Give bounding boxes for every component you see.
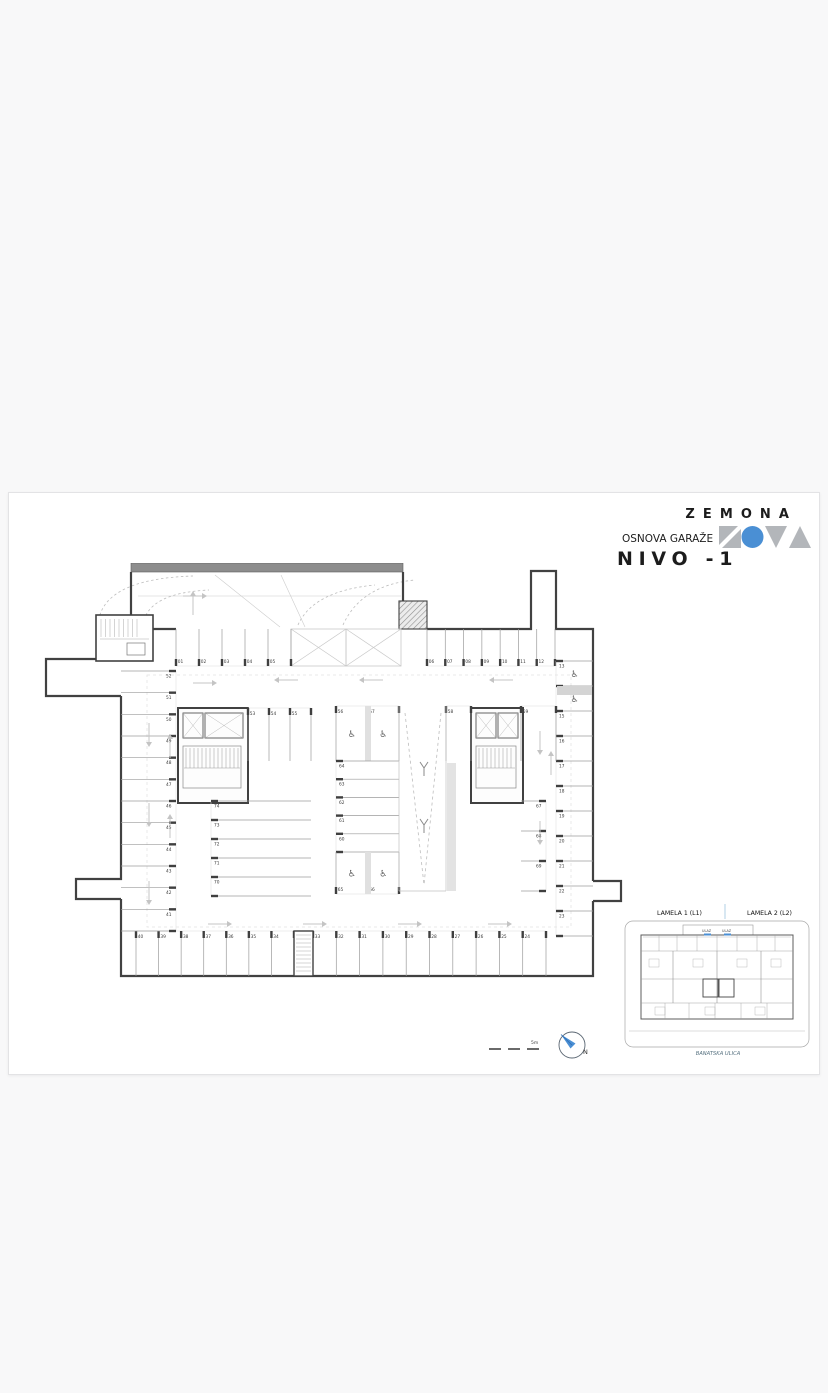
svg-text:71: 71 xyxy=(214,861,220,867)
svg-text:40: 40 xyxy=(138,934,144,940)
svg-text:33: 33 xyxy=(315,934,321,940)
svg-text:53: 53 xyxy=(250,711,256,717)
svg-text:37: 37 xyxy=(206,934,212,940)
svg-text:56: 56 xyxy=(338,709,344,715)
svg-text:67: 67 xyxy=(536,804,542,810)
svg-text:♿: ♿ xyxy=(570,670,578,680)
page-title: NIVO -1 xyxy=(617,548,738,570)
svg-text:61: 61 xyxy=(339,818,345,824)
svg-text:60: 60 xyxy=(339,836,345,842)
street-label: BANATSKA ULICA xyxy=(696,1051,741,1057)
svg-text:74: 74 xyxy=(214,804,220,810)
svg-text:19: 19 xyxy=(559,814,565,820)
lamela1-label: LAMELA 1 (L1) xyxy=(657,910,702,917)
svg-text:43: 43 xyxy=(166,869,172,875)
plan-drawing: 0102030405060708091011124039383736353433… xyxy=(46,563,621,976)
svg-text:46: 46 xyxy=(166,804,172,810)
svg-text:25: 25 xyxy=(501,934,507,940)
svg-text:23: 23 xyxy=(559,914,565,920)
svg-text:36: 36 xyxy=(228,934,234,940)
entrance1-marker xyxy=(704,934,711,936)
svg-text:15: 15 xyxy=(559,714,565,720)
lamela2-label: LAMELA 2 (L2) xyxy=(747,910,792,917)
svg-text:31: 31 xyxy=(361,934,367,940)
svg-text:42: 42 xyxy=(166,890,172,896)
svg-text:44: 44 xyxy=(166,847,172,853)
svg-text:10: 10 xyxy=(502,659,508,665)
svg-text:04: 04 xyxy=(247,659,253,665)
svg-text:49: 49 xyxy=(166,739,172,745)
svg-text:73: 73 xyxy=(214,823,220,829)
svg-text:72: 72 xyxy=(214,842,220,848)
svg-text:22: 22 xyxy=(559,889,565,895)
site-plan-inset: LAMELA 1 (L1) LAMELA 2 (L2) ULAZ ULAZ BA… xyxy=(619,903,819,1065)
svg-text:09: 09 xyxy=(484,659,490,665)
plan-footer-symbols: 5m N xyxy=(479,1023,609,1069)
svg-text:18: 18 xyxy=(559,789,565,795)
svg-text:69: 69 xyxy=(536,864,542,870)
svg-text:68: 68 xyxy=(536,834,542,840)
svg-text:62: 62 xyxy=(339,800,345,806)
svg-text:64: 64 xyxy=(339,764,345,770)
svg-text:35: 35 xyxy=(251,934,257,940)
entrance1-label: ULAZ xyxy=(702,929,712,933)
svg-text:59: 59 xyxy=(523,709,529,715)
nova-logo-icon xyxy=(719,526,811,548)
svg-text:12: 12 xyxy=(539,659,545,665)
inset-drawing xyxy=(625,921,809,1047)
svg-text:65: 65 xyxy=(338,887,344,893)
svg-text:03: 03 xyxy=(224,659,230,665)
svg-text:01: 01 xyxy=(178,659,184,665)
svg-text:58: 58 xyxy=(448,709,454,715)
svg-text:54: 54 xyxy=(271,711,277,717)
svg-text:29: 29 xyxy=(408,934,414,940)
svg-text:♿: ♿ xyxy=(379,730,387,740)
svg-text:24: 24 xyxy=(525,934,531,940)
garage-floor-plan: 0102030405060708091011124039383736353433… xyxy=(43,563,627,987)
scale-label: 5m xyxy=(531,1040,538,1046)
nova-a-icon xyxy=(789,526,811,548)
svg-text:47: 47 xyxy=(166,782,172,788)
svg-text:♿: ♿ xyxy=(348,730,356,740)
svg-text:52: 52 xyxy=(166,674,172,680)
svg-text:♿: ♿ xyxy=(348,870,356,880)
svg-text:32: 32 xyxy=(338,934,344,940)
brand-zemona: ZEMONA xyxy=(685,507,797,522)
svg-text:06: 06 xyxy=(429,659,435,665)
entrance2-marker xyxy=(724,934,731,936)
svg-text:♿: ♿ xyxy=(379,870,387,880)
svg-text:13: 13 xyxy=(559,664,565,670)
svg-text:07: 07 xyxy=(447,659,453,665)
svg-text:48: 48 xyxy=(166,760,172,766)
drawing-sheet: ZEMONA OSNOVA GARAŽE NIVO -1 01020304050… xyxy=(8,492,820,1075)
svg-text:21: 21 xyxy=(559,864,565,870)
screen: ZEMONA OSNOVA GARAŽE NIVO -1 01020304050… xyxy=(0,0,828,1393)
svg-text:34: 34 xyxy=(273,934,279,940)
nova-o-icon xyxy=(742,526,764,548)
svg-text:55: 55 xyxy=(292,711,298,717)
svg-text:41: 41 xyxy=(166,912,172,918)
svg-text:38: 38 xyxy=(183,934,189,940)
svg-text:63: 63 xyxy=(339,782,345,788)
svg-text:27: 27 xyxy=(455,934,461,940)
north-label: N xyxy=(583,1048,588,1056)
scale-bar: 5m xyxy=(489,1040,539,1049)
svg-text:70: 70 xyxy=(214,880,220,886)
svg-text:39: 39 xyxy=(160,934,166,940)
north-compass-icon: N xyxy=(559,1032,588,1058)
svg-text:02: 02 xyxy=(201,659,207,665)
svg-text:♿: ♿ xyxy=(570,695,578,705)
svg-text:05: 05 xyxy=(270,659,276,665)
svg-text:16: 16 xyxy=(559,739,565,745)
plan-subtitle: OSNOVA GARAŽE xyxy=(622,533,713,545)
svg-text:51: 51 xyxy=(166,695,172,701)
svg-text:45: 45 xyxy=(166,825,172,831)
entrance2-label: ULAZ xyxy=(722,929,732,933)
nova-v-icon xyxy=(765,526,787,548)
svg-text:28: 28 xyxy=(431,934,437,940)
svg-text:50: 50 xyxy=(166,717,172,723)
svg-text:17: 17 xyxy=(559,764,565,770)
svg-text:26: 26 xyxy=(478,934,484,940)
svg-text:11: 11 xyxy=(520,659,526,665)
svg-text:08: 08 xyxy=(465,659,471,665)
svg-text:30: 30 xyxy=(385,934,391,940)
svg-text:20: 20 xyxy=(559,839,565,845)
